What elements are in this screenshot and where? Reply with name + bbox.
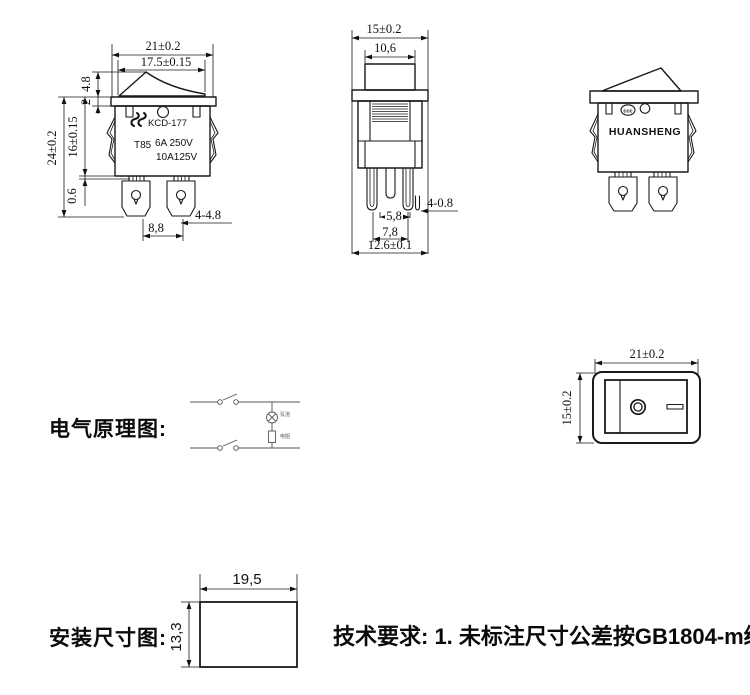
dim-front-pin-note: 4-4.8: [195, 208, 221, 222]
dim-front-rocker-width: 17.5±0.15: [141, 55, 192, 69]
dim-install-height: 13,3: [168, 622, 185, 651]
off-symbol: [631, 400, 645, 414]
side-view-dimensions: 15±0.2 10,6 5,8 7,8 12.6±0.1 4-0.8: [352, 22, 458, 254]
switch-blade: [223, 394, 237, 400]
resistor-label: 电阻: [280, 433, 290, 440]
schematic-circuit: 氖泡 电阻: [190, 394, 300, 450]
front-view: KCD-177 T85 6A 250V 10A125V: [107, 72, 218, 216]
side-view: [352, 64, 428, 210]
terminal-pin: [167, 181, 195, 216]
panel-view: 21±0.2 15±0.2: [560, 347, 700, 443]
dim-side-rocker: 10,6: [374, 41, 396, 55]
tech-requirements-note: 技术要求: 1. 未标注尺寸公差按GB1804-m级: [333, 619, 750, 651]
terminal-pin: [649, 177, 677, 211]
installation-label: 安装尺寸图:: [49, 622, 167, 652]
dim-side-pin-note: 4-0.8: [427, 196, 453, 210]
installation-view: 19,5 13,3: [168, 571, 297, 667]
dim-front-width: 21±0.2: [146, 39, 181, 53]
rocker-tilted: [602, 68, 681, 91]
drawing-sheet: KCD-177 T85 6A 250V 10A125V 21±0.2 17.5±…: [0, 0, 750, 695]
rating-line2-text: 10A125V: [156, 152, 197, 163]
model-text: KCD-177: [148, 118, 187, 129]
flange-side: [352, 90, 428, 101]
switch-contact: [234, 400, 239, 405]
rating-line1-text: 6A 250V: [155, 138, 193, 149]
dim-side-total: 12.6±0.1: [368, 238, 412, 252]
dim-front-rocker-height: 4.8: [79, 76, 93, 92]
switch-contact: [218, 446, 223, 451]
brand-text: HUANSHENG: [609, 126, 681, 138]
drawing-canvas: KCD-177 T85 6A 250V 10A125V 21±0.2 17.5±…: [0, 0, 750, 695]
perspective-view: ccc HUANSHENG: [590, 68, 698, 211]
body-side: [358, 101, 422, 168]
side-pin: [403, 168, 413, 210]
dim-panel-height: 15±0.2: [560, 391, 574, 426]
switch-contact: [234, 446, 239, 451]
resistor-icon: [269, 431, 276, 443]
side-pin: [367, 168, 377, 210]
rocker-side: [365, 64, 415, 90]
switch-blade: [223, 440, 237, 446]
dim-side-width: 15±0.2: [367, 22, 402, 36]
rocker-profile: [119, 72, 205, 96]
on-symbol: [667, 405, 683, 410]
rib-hatching: [372, 104, 408, 122]
flange: [111, 97, 216, 106]
indicator-dot: [640, 104, 650, 114]
dim-side-pins-inner: 5,8: [386, 209, 402, 223]
dim-panel-width: 21±0.2: [630, 347, 665, 361]
cutout-rect: [200, 602, 297, 667]
dim-install-width: 19,5: [232, 571, 261, 588]
dim-front-gap: 0.6: [65, 188, 79, 204]
dim-side-pins-outer: 7,8: [382, 225, 398, 239]
dim-front-pin-pitch: 8,8: [148, 221, 164, 235]
rating-code-text: T85: [134, 140, 152, 151]
switch-contact: [218, 400, 223, 405]
flange-iso: [590, 91, 698, 103]
dim-front-total-height: 24±0.2: [45, 131, 59, 166]
schematic-label: 电气原理图:: [49, 413, 167, 443]
dim-front-body-height: 16±0.15: [66, 116, 80, 157]
lamp-label: 氖泡: [280, 411, 290, 418]
terminal-pin: [609, 177, 637, 211]
side-pin-rear: [416, 196, 420, 210]
dim-front-flange: 2: [79, 99, 93, 105]
cert-mark-text: ccc: [623, 109, 632, 115]
terminal-pin: [122, 181, 150, 216]
side-pin-middle: [386, 168, 395, 198]
